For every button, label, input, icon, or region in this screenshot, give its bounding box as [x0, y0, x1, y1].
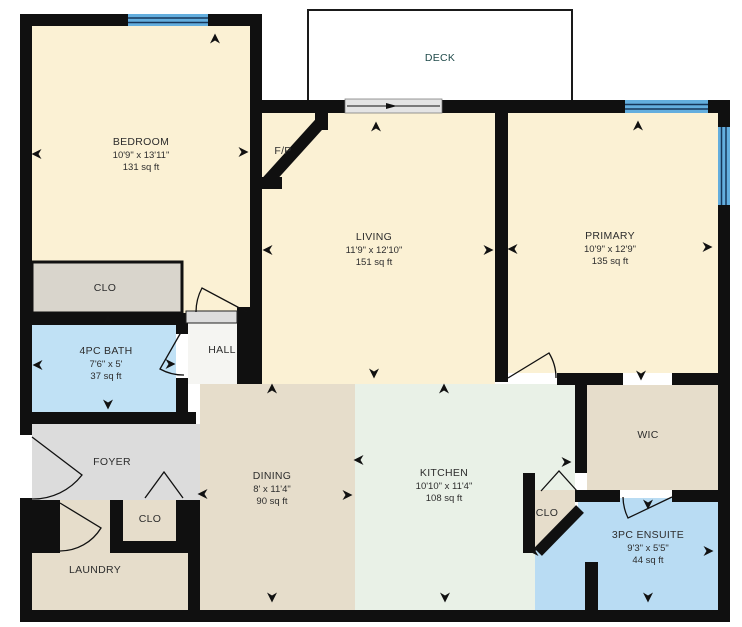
floor-plan: DECK BEDROOM 10'9" x 13'11" 131 sq ft F/… [0, 0, 742, 627]
primary-side-window [718, 127, 730, 205]
room-wic [587, 385, 718, 490]
room-dining [200, 384, 355, 610]
room-hall [188, 322, 237, 384]
primary-top-window [625, 100, 708, 113]
bedroom-window [128, 14, 208, 26]
deck-sliding-door [345, 99, 442, 113]
hall-opening-header [186, 311, 237, 323]
room-closet-foyer [123, 500, 176, 541]
room-foyer [32, 424, 200, 500]
room-bath [32, 325, 176, 412]
room-primary [508, 113, 718, 373]
room-closet-bedroom [32, 262, 182, 313]
room-deck [308, 10, 572, 102]
floor-plan-drawing [0, 0, 742, 627]
